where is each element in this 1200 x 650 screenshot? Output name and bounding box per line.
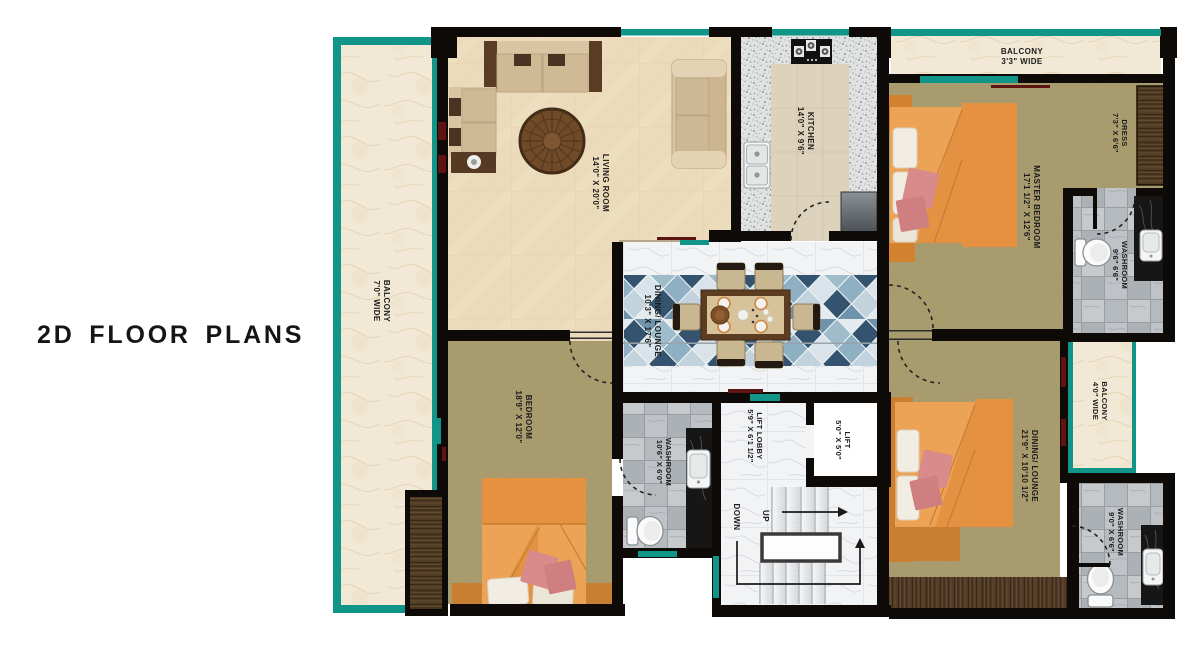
svg-text:WASHROOM: WASHROOM	[1120, 241, 1129, 289]
svg-text:BEDROOM: BEDROOM	[524, 395, 533, 440]
svg-text:4'0" WIDE: 4'0" WIDE	[1091, 382, 1100, 420]
svg-text:18'9" X 12'0": 18'9" X 12'0"	[514, 390, 523, 443]
svg-text:DRESS: DRESS	[1120, 119, 1129, 146]
svg-text:9'0" X 6'6": 9'0" X 6'6"	[1107, 512, 1116, 552]
svg-text:7'3" X 6'6": 7'3" X 6'6"	[1111, 113, 1120, 153]
svg-text:3'3" WIDE: 3'3" WIDE	[1001, 57, 1043, 66]
svg-text:LIFT LOBBY: LIFT LOBBY	[755, 412, 764, 459]
svg-text:7'0" WIDE: 7'0" WIDE	[372, 280, 381, 322]
svg-text:LIFT: LIFT	[843, 431, 852, 448]
svg-text:BALCONY: BALCONY	[1100, 381, 1109, 420]
svg-text:WASHROOM: WASHROOM	[664, 438, 673, 486]
svg-text:LIVING ROOM: LIVING ROOM	[601, 154, 610, 212]
svg-text:21'9" X 10'10 1/2": 21'9" X 10'10 1/2"	[1020, 430, 1029, 503]
svg-text:17'1 1/2" X 12'6": 17'1 1/2" X 12'6"	[1022, 173, 1031, 241]
svg-text:DINING/ LOUNGE: DINING/ LOUNGE	[1030, 430, 1039, 503]
svg-text:9'6" 6'6": 9'6" 6'6"	[1111, 249, 1120, 281]
svg-text:MASTER BEDROOM: MASTER BEDROOM	[1032, 165, 1041, 248]
svg-text:10'3" X 17'6": 10'3" X 17'6"	[643, 294, 652, 347]
svg-text:14'0" X 9'6": 14'0" X 9'6"	[796, 107, 805, 155]
svg-text:10'6" X 6'0": 10'6" X 6'0"	[655, 440, 664, 484]
svg-text:5'9" X 6'1 1/2": 5'9" X 6'1 1/2"	[746, 409, 755, 463]
svg-text:DOWN: DOWN	[732, 504, 741, 531]
svg-text:BALCONY: BALCONY	[382, 280, 391, 323]
svg-text:KITCHEN: KITCHEN	[806, 112, 815, 150]
svg-text:BALCONY: BALCONY	[1001, 47, 1044, 56]
svg-text:WASHROOM: WASHROOM	[1116, 508, 1125, 556]
svg-text:14'0" X 20'0": 14'0" X 20'0"	[591, 156, 600, 209]
svg-text:2D FLOOR PLANS: 2D FLOOR PLANS	[37, 321, 304, 349]
svg-text:UP: UP	[761, 510, 770, 522]
svg-text:DINING/ LOUNGE: DINING/ LOUNGE	[653, 285, 662, 358]
svg-text:5'0" X 5'0": 5'0" X 5'0"	[834, 420, 843, 460]
